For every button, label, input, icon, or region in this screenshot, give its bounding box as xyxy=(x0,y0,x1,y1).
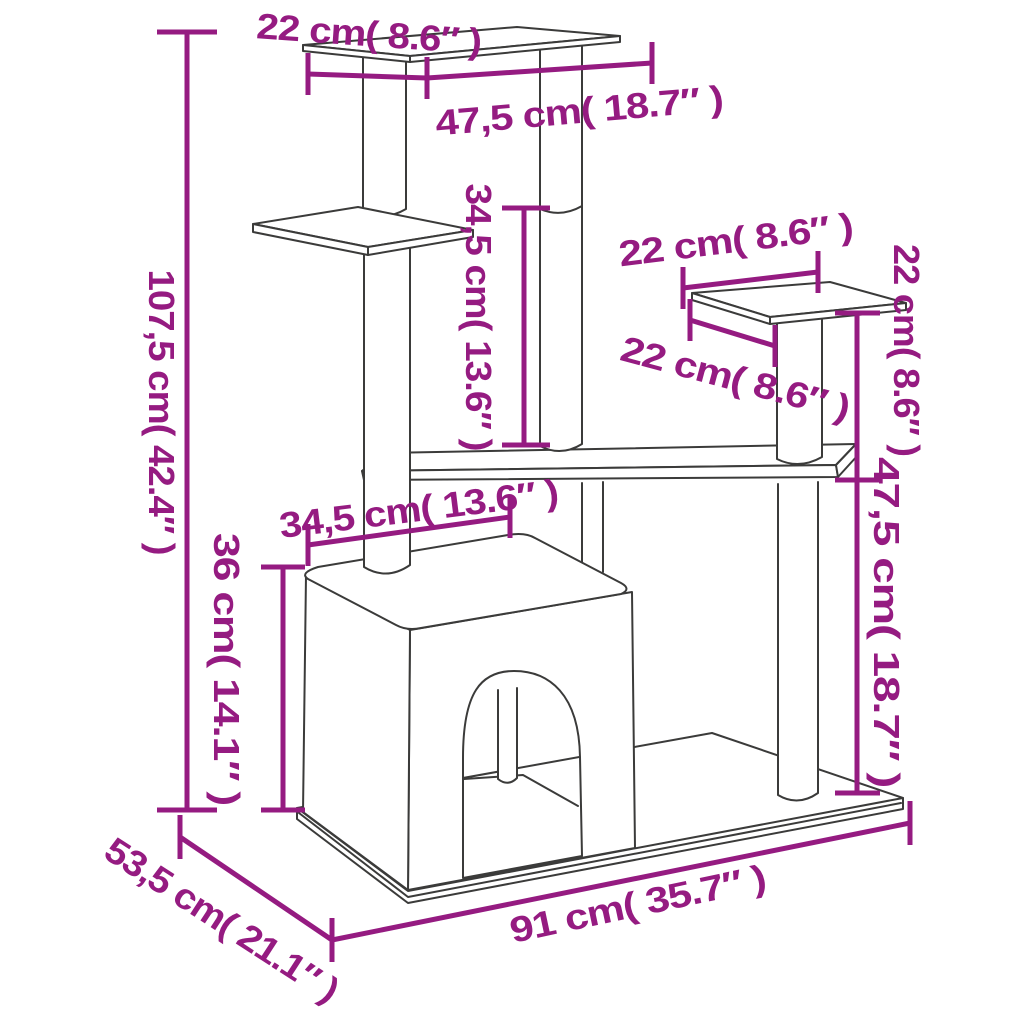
left-platform xyxy=(253,207,473,255)
scratching-post-rear-upper xyxy=(582,482,603,572)
dim-condo-height xyxy=(261,567,305,810)
scratching-post-right-lower xyxy=(778,482,818,801)
dim-label-condo-height: 36 cm( 14.1″ ) xyxy=(206,533,247,805)
dim-label-total-height: 107,5 cm( 42.4″ ) xyxy=(141,270,182,555)
condo-interior-post xyxy=(498,688,517,783)
dim-label-upper-post-height: 34,5 cm( 13.6″ ) xyxy=(458,184,499,451)
dim-label-right-platform-height: 22 cm( 8.6″ ) xyxy=(886,244,927,456)
cat-tree-dimension-diagram: 22 cm( 8.6″ ) 47,5 cm( 18.7″ ) 34,5 cm( … xyxy=(0,0,1024,1024)
dim-label-top-platform-depth: 22 cm( 8.6″ ) xyxy=(255,5,482,62)
right-platform xyxy=(692,282,906,324)
dim-label-base-depth: 53,5 cm( 21.1″ ) xyxy=(97,829,346,1010)
dim-label-lower-right-height: 47,5 cm( 18.7″ ) xyxy=(866,457,907,787)
cat-tree-drawing xyxy=(253,27,906,903)
